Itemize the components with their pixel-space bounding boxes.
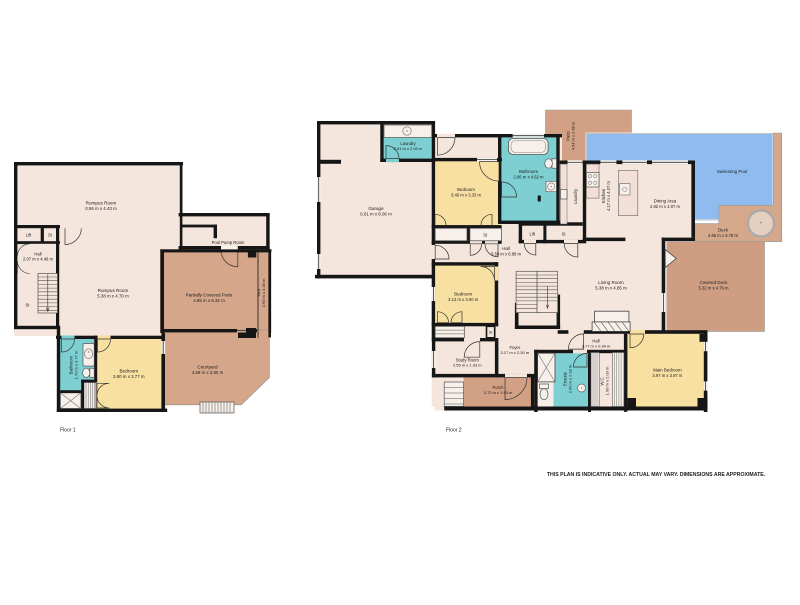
svg-text:Bedroom: Bedroom (119, 369, 138, 374)
svg-text:3.72 m x 1.93 m: 3.72 m x 1.93 m (484, 390, 513, 395)
svg-text:4.65 m x 5.78 m: 4.65 m x 5.78 m (708, 233, 739, 238)
svg-text:2.69 m x 2.93 m: 2.69 m x 2.93 m (568, 364, 573, 393)
svg-text:Swimming Pool: Swimming Pool (717, 169, 747, 174)
svg-text:Laundry: Laundry (573, 188, 578, 204)
svg-text:2.55 m x 1.93 m: 2.55 m x 1.93 m (453, 363, 482, 368)
svg-text:3.50 m x 3.77 m: 3.50 m x 3.77 m (113, 374, 145, 379)
svg-text:Rumpus Room: Rumpus Room (86, 201, 117, 206)
svg-text:Lift: Lift (530, 232, 536, 237)
svg-text:0.56 m x 4.43 m: 0.56 m x 4.43 m (85, 206, 117, 211)
svg-text:4.54 m x 2.68 m: 4.54 m x 2.68 m (571, 121, 576, 150)
svg-text:Floor 1: Floor 1 (60, 428, 76, 434)
svg-text:3.46 m x 3.33 m: 3.46 m x 3.33 m (451, 193, 482, 198)
svg-text:Bathroom: Bathroom (519, 169, 538, 174)
svg-text:3.97 m x 3.97 m: 3.97 m x 3.97 m (652, 373, 683, 378)
svg-text:Floor 2: Floor 2 (446, 428, 462, 434)
svg-text:3.17 m x 2.30 m: 3.17 m x 2.30 m (500, 350, 529, 355)
svg-text:Rumpus Room: Rumpus Room (98, 288, 129, 293)
svg-text:2.07 m x 4.46 m: 2.07 m x 4.46 m (23, 257, 54, 262)
svg-text:Courtyard: Courtyard (197, 365, 218, 370)
svg-text:4.68 m x 3.90 m: 4.68 m x 3.90 m (192, 370, 224, 375)
svg-text:1.70 m x 3.77 m: 1.70 m x 3.77 m (74, 350, 79, 379)
svg-text:Pool Pump Room: Pool Pump Room (212, 240, 245, 245)
svg-text:THIS PLAN IS INDICATIVE ONLY.: THIS PLAN IS INDICATIVE ONLY. ACTUAL MAY… (547, 472, 766, 478)
svg-text:Partially Covered Patio: Partially Covered Patio (186, 293, 233, 298)
svg-text:Garage: Garage (368, 206, 384, 211)
svg-text:2.86 m x 4.62 m: 2.86 m x 4.62 m (513, 175, 544, 180)
svg-text:4.17 m x 4.07 m: 4.17 m x 4.07 m (606, 180, 611, 211)
svg-text:Bedroom: Bedroom (457, 187, 475, 192)
svg-text:3.77 m x 0.94 m: 3.77 m x 0.94 m (582, 344, 611, 349)
svg-text:6.01 m x 8.06 m: 6.01 m x 8.06 m (360, 212, 392, 217)
svg-text:Dining Area: Dining Area (654, 199, 677, 204)
svg-text:3.13 m x 3.00 m: 3.13 m x 3.00 m (448, 297, 479, 302)
svg-text:0.63 m x 4.46 m: 0.63 m x 4.46 m (261, 278, 266, 307)
svg-text:5.38 m x 4.70 m: 5.38 m x 4.70 m (97, 294, 129, 299)
svg-text:5.59 m x 6.88 m: 5.59 m x 6.88 m (491, 252, 522, 257)
svg-text:Covered Deck: Covered Deck (700, 280, 729, 285)
svg-text:Lift: Lift (26, 233, 32, 238)
svg-text:Bedroom: Bedroom (454, 292, 472, 297)
svg-text:Hall: Hall (502, 246, 510, 251)
svg-text:2.61 m x 2.03 m: 2.61 m x 2.03 m (394, 146, 423, 151)
svg-text:1.99 m x 2.03 m: 1.99 m x 2.03 m (605, 366, 610, 395)
svg-text:2.82 m x 4.07 m: 2.82 m x 4.07 m (650, 204, 681, 209)
svg-text:Deck: Deck (718, 228, 729, 233)
svg-text:5.32 m x 4.76 m: 5.32 m x 4.76 m (698, 286, 729, 291)
svg-text:Main Bedroom: Main Bedroom (653, 368, 682, 373)
svg-text:4.85 m x 8.32 m: 4.85 m x 8.32 m (193, 298, 225, 303)
svg-text:5.38 m x 4.85 m: 5.38 m x 4.85 m (595, 286, 627, 291)
svg-text:Living Room: Living Room (598, 280, 624, 285)
